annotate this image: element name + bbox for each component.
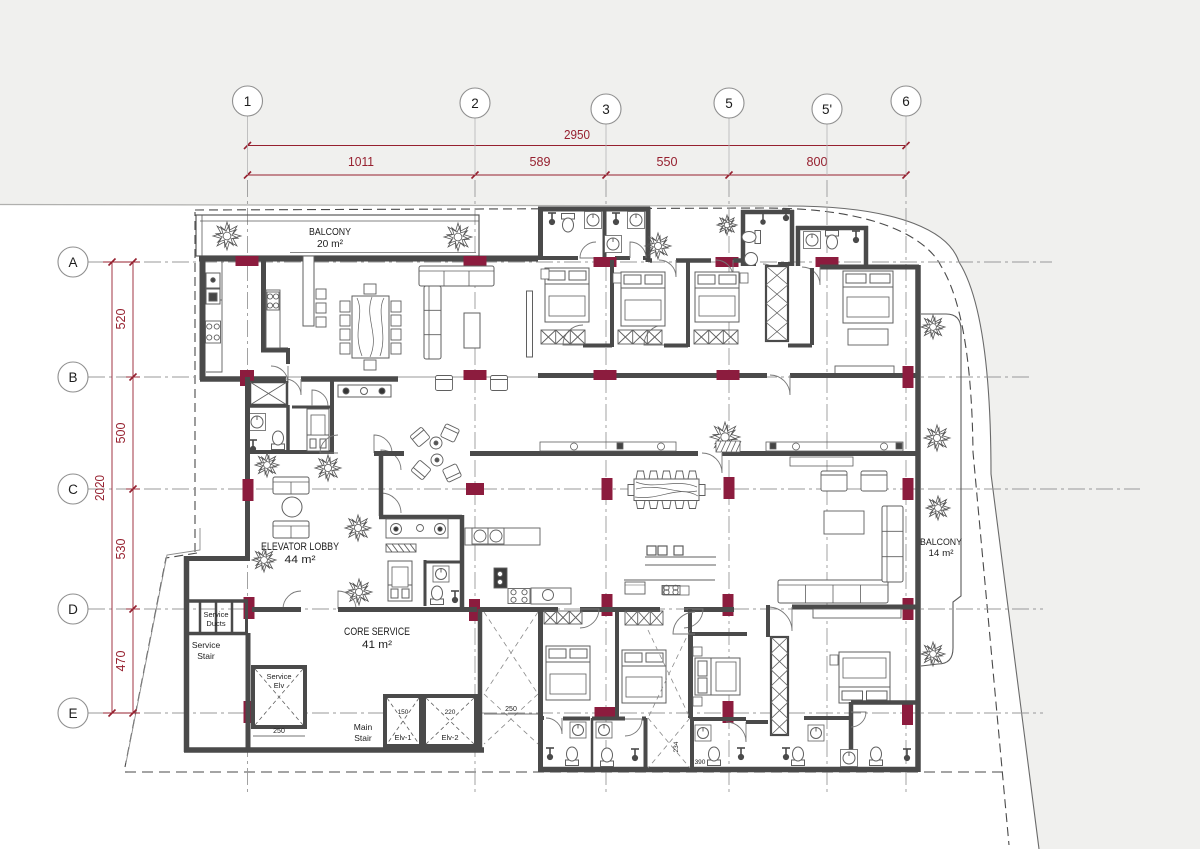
svg-text:2020: 2020: [93, 475, 107, 501]
svg-text:550: 550: [657, 155, 678, 169]
svg-text:B: B: [68, 370, 77, 385]
svg-text:Elv: Elv: [274, 681, 285, 690]
svg-text:2950: 2950: [564, 128, 590, 142]
svg-text:Main: Main: [354, 722, 373, 732]
svg-text:5': 5': [822, 102, 832, 117]
svg-text:150: 150: [398, 709, 409, 716]
svg-text:Service: Service: [192, 640, 221, 650]
svg-text:CORE SERVICE: CORE SERVICE: [344, 626, 410, 638]
svg-text:Stair: Stair: [197, 651, 215, 661]
svg-text:C: C: [68, 482, 78, 497]
svg-text:800: 800: [807, 155, 828, 169]
svg-text:BALCONY: BALCONY: [309, 227, 351, 238]
svg-text:Elv-2: Elv-2: [441, 733, 458, 742]
svg-text:Stair: Stair: [354, 733, 372, 743]
svg-text:2: 2: [471, 96, 479, 111]
svg-text:1011: 1011: [348, 155, 374, 169]
svg-text:220: 220: [445, 709, 456, 716]
svg-text:20 m²: 20 m²: [317, 239, 344, 250]
svg-text:589: 589: [530, 155, 551, 169]
svg-text:390: 390: [695, 759, 706, 766]
svg-text:530: 530: [114, 538, 128, 559]
svg-text:6: 6: [902, 94, 910, 109]
svg-text:234: 234: [673, 741, 680, 752]
svg-text:BALCONY: BALCONY: [920, 537, 963, 548]
svg-text:500: 500: [114, 422, 128, 443]
svg-text:Ducts: Ducts: [206, 619, 225, 628]
svg-text:5: 5: [725, 96, 733, 111]
svg-text:E: E: [68, 706, 77, 721]
svg-text:D: D: [68, 602, 78, 617]
svg-text:Elv-1: Elv-1: [394, 733, 411, 742]
svg-text:250: 250: [505, 706, 517, 713]
svg-text:14 m²: 14 m²: [929, 548, 954, 559]
svg-text:Service: Service: [203, 610, 228, 619]
svg-text:3: 3: [602, 102, 610, 117]
svg-text:44 m²: 44 m²: [285, 554, 316, 566]
svg-text:470: 470: [114, 650, 128, 671]
svg-text:1: 1: [244, 94, 252, 109]
svg-text:Service: Service: [266, 672, 291, 681]
svg-text:250: 250: [273, 728, 285, 735]
svg-text:41 m²: 41 m²: [362, 639, 392, 651]
svg-text:A: A: [68, 255, 77, 270]
svg-text:520: 520: [114, 308, 128, 329]
